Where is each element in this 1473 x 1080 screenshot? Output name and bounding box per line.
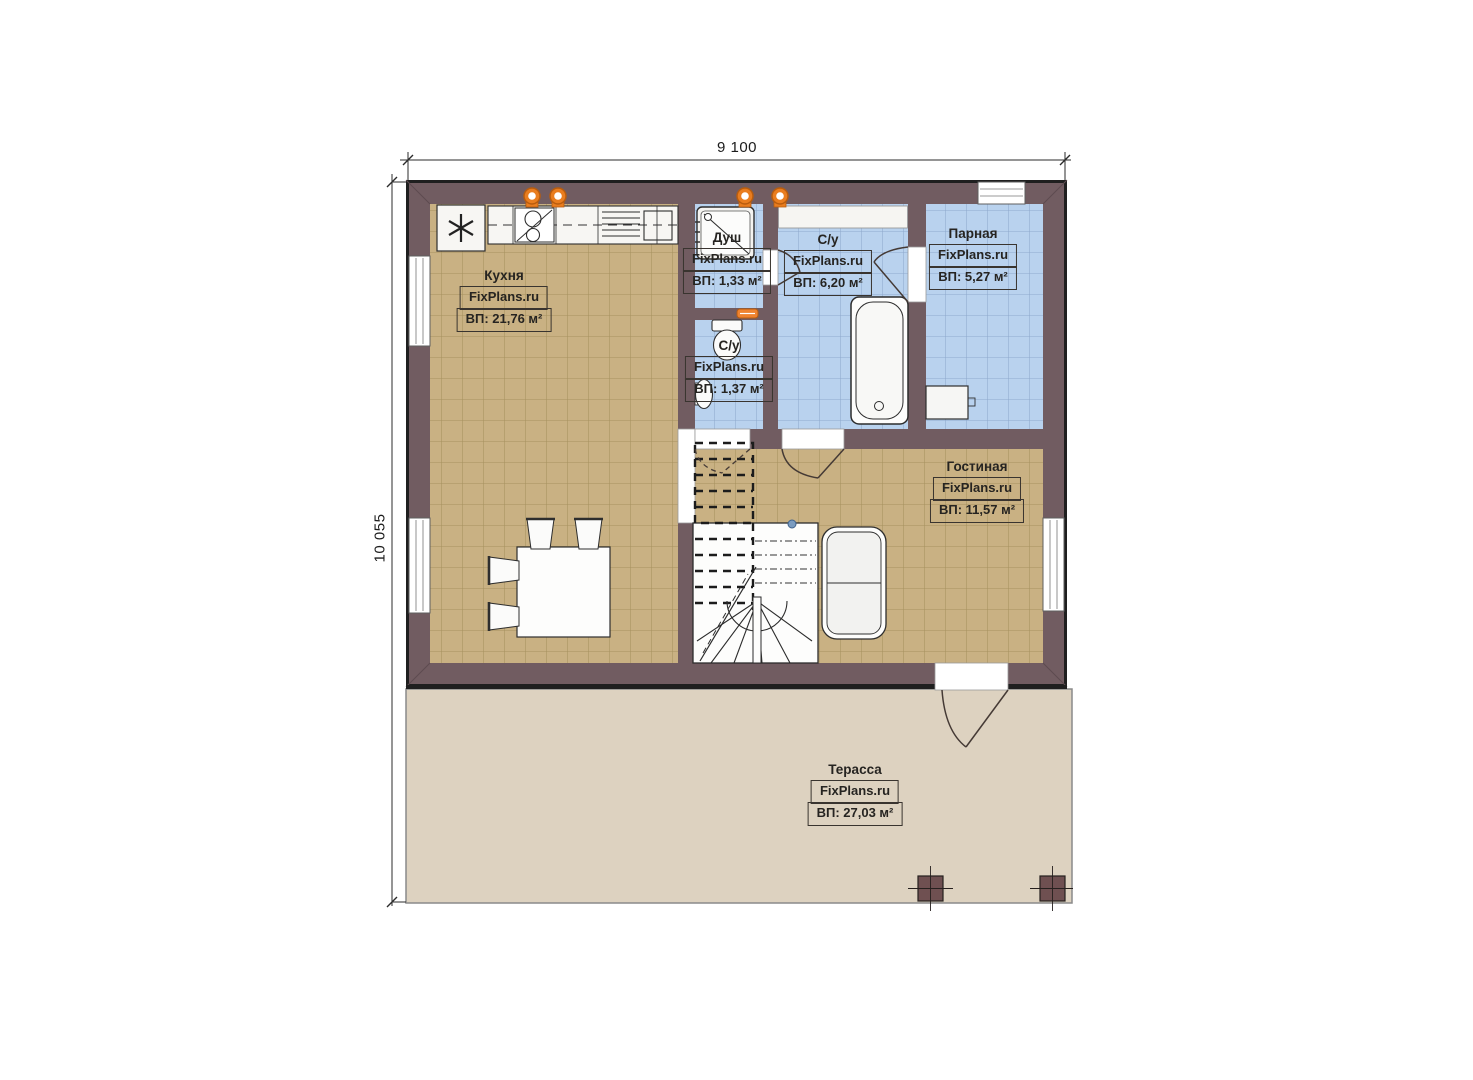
chair <box>574 519 603 549</box>
room-label-steam-room: Парная FixPlans.ru ВП: 5,27 м² <box>929 226 1017 290</box>
room-label-shower: Душ FixPlans.ru ВП: 1,33 м² <box>683 230 771 294</box>
watermark-label: FixPlans.ru <box>460 286 548 310</box>
wc-door-opening <box>695 429 750 449</box>
dimension-height-label: 10 055 <box>372 514 389 563</box>
floor-plan: 9 100 10 055 Кухня FixPlans.ru ВП: 21,76… <box>0 0 1473 1080</box>
room-name: Терасса <box>828 762 882 777</box>
room-area-label: ВП: 1,33 м² <box>683 270 771 294</box>
room-name: Гостиная <box>946 459 1007 474</box>
room-label-bathroom: С/у FixPlans.ru ВП: 6,20 м² <box>784 232 872 296</box>
watermark-label: FixPlans.ru <box>784 250 872 274</box>
room-area-label: ВП: 1,37 м² <box>685 378 773 402</box>
steam-room-door-opening <box>908 247 926 302</box>
room-area-label: ВП: 21,76 м² <box>457 308 552 332</box>
window <box>1043 518 1064 611</box>
window <box>978 182 1025 204</box>
stair-node-marker <box>788 520 796 528</box>
dimension-width-label: 9 100 <box>717 139 757 156</box>
bathroom-counter <box>779 206 908 228</box>
kitchen-hall-passage <box>678 429 695 523</box>
watermark-label: FixPlans.ru <box>683 248 771 272</box>
height-dimension-line <box>387 174 406 907</box>
wall-lamp-icon <box>524 188 540 207</box>
wall-lamp-icon <box>550 188 566 207</box>
chair <box>489 556 519 585</box>
room-area-label: ВП: 27,03 м² <box>808 802 903 826</box>
terrace-door-opening <box>935 663 1008 690</box>
room-name: Кухня <box>484 268 523 283</box>
room-label-wc: С/у FixPlans.ru ВП: 1,37 м² <box>685 338 773 402</box>
room-name: Парная <box>948 226 997 241</box>
room-area-label: ВП: 5,27 м² <box>929 266 1017 290</box>
room-area-label: ВП: 11,57 м² <box>930 499 1024 523</box>
watermark-label: FixPlans.ru <box>685 356 773 380</box>
sofa <box>822 527 886 639</box>
plinth-line <box>406 685 935 689</box>
fridge <box>437 205 485 251</box>
plinth-line <box>1008 685 1067 689</box>
chair <box>489 602 519 631</box>
bathtub <box>851 297 908 424</box>
bathroom-door-opening <box>782 429 844 449</box>
watermark-label: FixPlans.ru <box>929 244 1017 268</box>
window <box>409 256 430 346</box>
room-area-label: ВП: 6,20 м² <box>784 272 872 296</box>
wall-lamp-icon <box>772 188 788 207</box>
room-label-living-room: Гостиная FixPlans.ru ВП: 11,57 м² <box>930 459 1024 523</box>
watermark-label: FixPlans.ru <box>811 780 899 804</box>
floor-plan-drawing <box>0 0 1473 1080</box>
room-label-kitchen: Кухня FixPlans.ru ВП: 21,76 м² <box>457 268 552 332</box>
sauna-heater <box>926 386 975 419</box>
room-name: С/у <box>817 232 838 247</box>
room-name: С/у <box>718 338 739 353</box>
window <box>409 518 430 613</box>
dining-table <box>517 547 610 637</box>
towel-radiator-icon <box>737 309 758 318</box>
room-label-terrace: Терасса FixPlans.ru ВП: 27,03 м² <box>808 762 903 826</box>
stair-newel <box>753 597 761 663</box>
room-name: Душ <box>713 230 742 245</box>
width-dimension-line <box>400 152 1071 180</box>
watermark-label: FixPlans.ru <box>933 477 1021 501</box>
kitchen-counter <box>488 206 678 244</box>
chair <box>526 519 555 549</box>
wall-lamp-icon <box>737 188 753 207</box>
kitchen-sink <box>515 208 554 242</box>
terrace <box>406 689 1073 911</box>
